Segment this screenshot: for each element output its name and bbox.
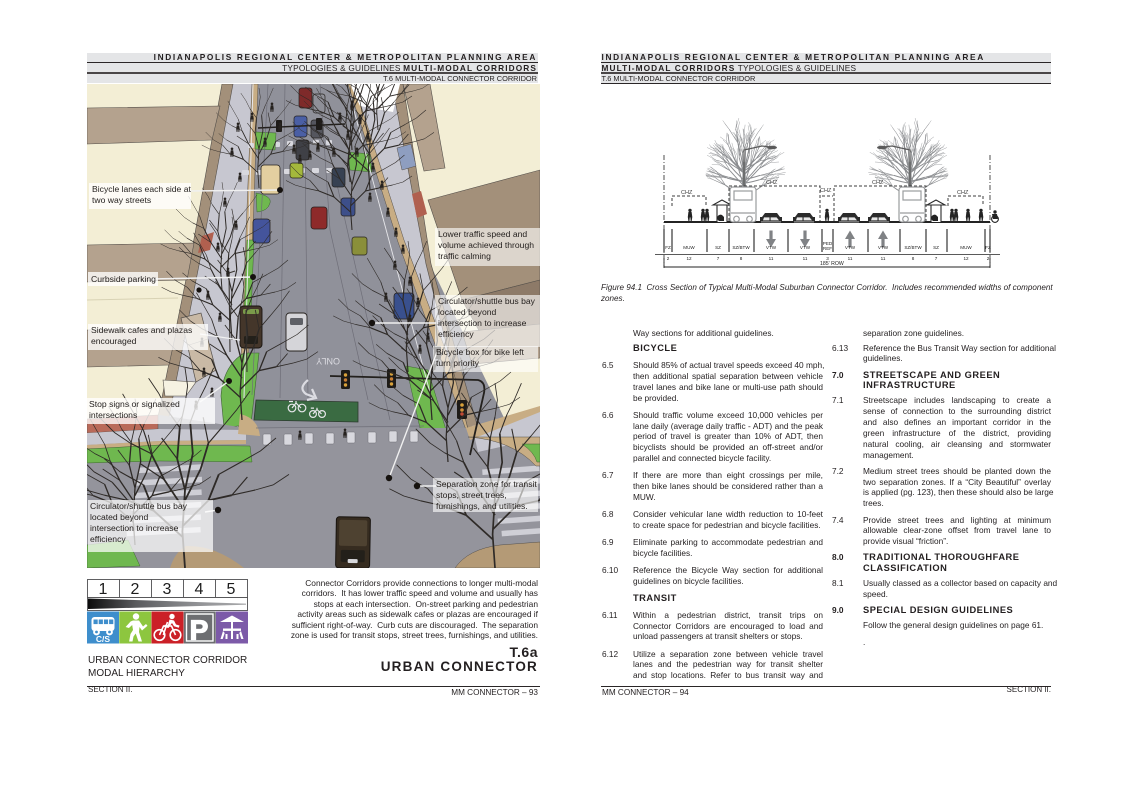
- svg-text:furnishings, and utilities.: furnishings, and utilities.: [436, 501, 528, 511]
- svg-text:efficiency: efficiency: [90, 534, 126, 544]
- svg-text:efficiency: efficiency: [438, 329, 474, 339]
- svg-text:SZ/BTW: SZ/BTW: [904, 245, 922, 250]
- svg-text:CHZ: CHZ: [820, 188, 832, 194]
- svg-text:2: 2: [131, 581, 140, 598]
- svg-text:intersection to increase: intersection to increase: [438, 318, 527, 328]
- svg-text:2: 2: [667, 256, 670, 261]
- svg-text:5: 5: [227, 581, 236, 598]
- svg-text:8: 8: [740, 256, 743, 261]
- svg-text:FZ: FZ: [985, 245, 991, 250]
- svg-text:intersections: intersections: [89, 410, 137, 420]
- svg-text:8: 8: [912, 256, 915, 261]
- svg-text:CHZ: CHZ: [957, 190, 969, 196]
- svg-text:P: P: [190, 615, 209, 645]
- svg-text:11: 11: [803, 256, 808, 261]
- svg-text:4: 4: [195, 581, 204, 598]
- svg-text:SZ: SZ: [933, 245, 939, 250]
- svg-text:CHZ: CHZ: [766, 180, 778, 186]
- svg-text:MUW: MUW: [683, 245, 695, 250]
- svg-text:SZ: SZ: [715, 245, 721, 250]
- svg-text:REF: REF: [823, 246, 832, 251]
- svg-text:traffic calming: traffic calming: [438, 251, 491, 261]
- svg-text:VTW: VTW: [800, 245, 811, 250]
- svg-text:two way streets: two way streets: [92, 195, 151, 205]
- svg-text:3: 3: [163, 581, 172, 598]
- svg-text:11: 11: [881, 256, 886, 261]
- svg-text:7: 7: [935, 256, 938, 261]
- svg-text:Separation zone for transit: Separation zone for transit: [436, 479, 537, 489]
- svg-text:12: 12: [963, 256, 969, 261]
- svg-text:Stop signs or signalized: Stop signs or signalized: [89, 399, 180, 409]
- svg-text:CHZ: CHZ: [872, 180, 884, 186]
- svg-text:VTW: VTW: [845, 245, 856, 250]
- svg-text:Bicycle lanes each side at: Bicycle lanes each side at: [92, 184, 191, 194]
- svg-text:11: 11: [769, 256, 774, 261]
- svg-text:1: 1: [99, 581, 108, 598]
- svg-text:encouraged: encouraged: [91, 336, 137, 346]
- svg-text:2: 2: [987, 256, 990, 261]
- svg-text:CHZ: CHZ: [681, 190, 693, 196]
- svg-text:located beyond: located beyond: [438, 307, 497, 317]
- svg-text:Sidewalk cafes and plazas: Sidewalk cafes and plazas: [91, 325, 192, 335]
- svg-text:Circulator/shuttle bus bay: Circulator/shuttle bus bay: [438, 296, 536, 306]
- svg-text:VTW: VTW: [878, 245, 889, 250]
- svg-text:11: 11: [848, 256, 853, 261]
- svg-text:Bicycle box for bike left: Bicycle box for bike left: [436, 347, 524, 357]
- svg-text:Curbside parking: Curbside parking: [91, 274, 156, 284]
- svg-text:VTW: VTW: [766, 245, 777, 250]
- svg-text:185' ROW: 185' ROW: [820, 261, 844, 267]
- svg-text:intersection to increase: intersection to increase: [90, 523, 179, 533]
- svg-text:7: 7: [717, 256, 720, 261]
- svg-text:FZ: FZ: [665, 245, 671, 250]
- svg-text:Circulator/shuttle bus bay: Circulator/shuttle bus bay: [90, 501, 188, 511]
- svg-text:located beyond: located beyond: [90, 512, 149, 522]
- svg-text:SZ/BTW: SZ/BTW: [732, 245, 750, 250]
- svg-text:stops, street trees,: stops, street trees,: [436, 490, 507, 500]
- svg-text:C/S: C/S: [96, 634, 111, 644]
- svg-text:volume achieved through: volume achieved through: [438, 240, 534, 250]
- svg-text:Lower traffic speed and: Lower traffic speed and: [438, 229, 527, 239]
- svg-text:ONLY: ONLY: [316, 356, 340, 366]
- svg-text:12: 12: [686, 256, 692, 261]
- svg-text:MUW: MUW: [960, 245, 972, 250]
- svg-text:turn priority: turn priority: [436, 358, 480, 368]
